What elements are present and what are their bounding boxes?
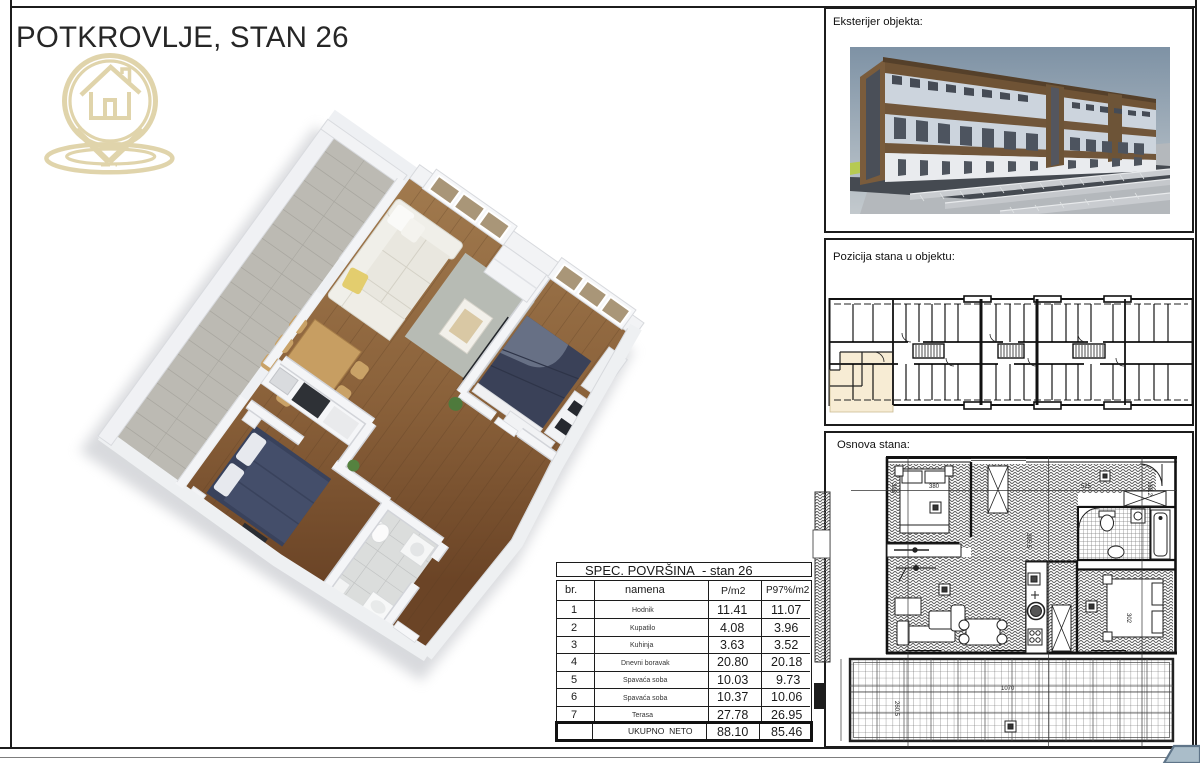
svg-text:1070: 1070 [1001,686,1015,692]
svg-text:160.2: 160.2 [1146,481,1152,497]
svg-text:303: 303 [890,483,896,494]
svg-text:260.5: 260.5 [893,701,899,717]
svg-text:525: 525 [1081,484,1092,490]
svg-text:380: 380 [929,484,940,490]
svg-text:395.5: 395.5 [1025,533,1031,549]
svg-text:302: 302 [1125,613,1131,624]
